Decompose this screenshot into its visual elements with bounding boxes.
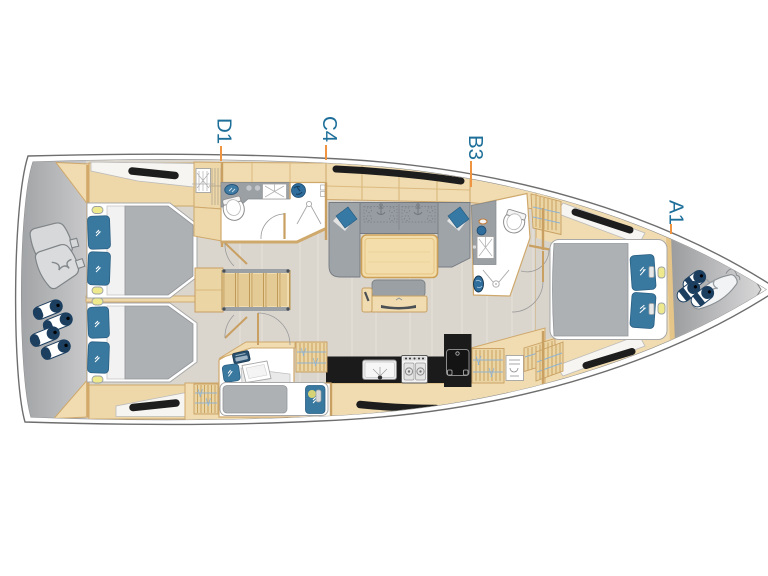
svg-text:B3: B3	[464, 135, 487, 160]
svg-text:D1: D1	[213, 118, 236, 144]
svg-text:A1: A1	[665, 200, 688, 225]
svg-text:C4: C4	[318, 116, 341, 142]
